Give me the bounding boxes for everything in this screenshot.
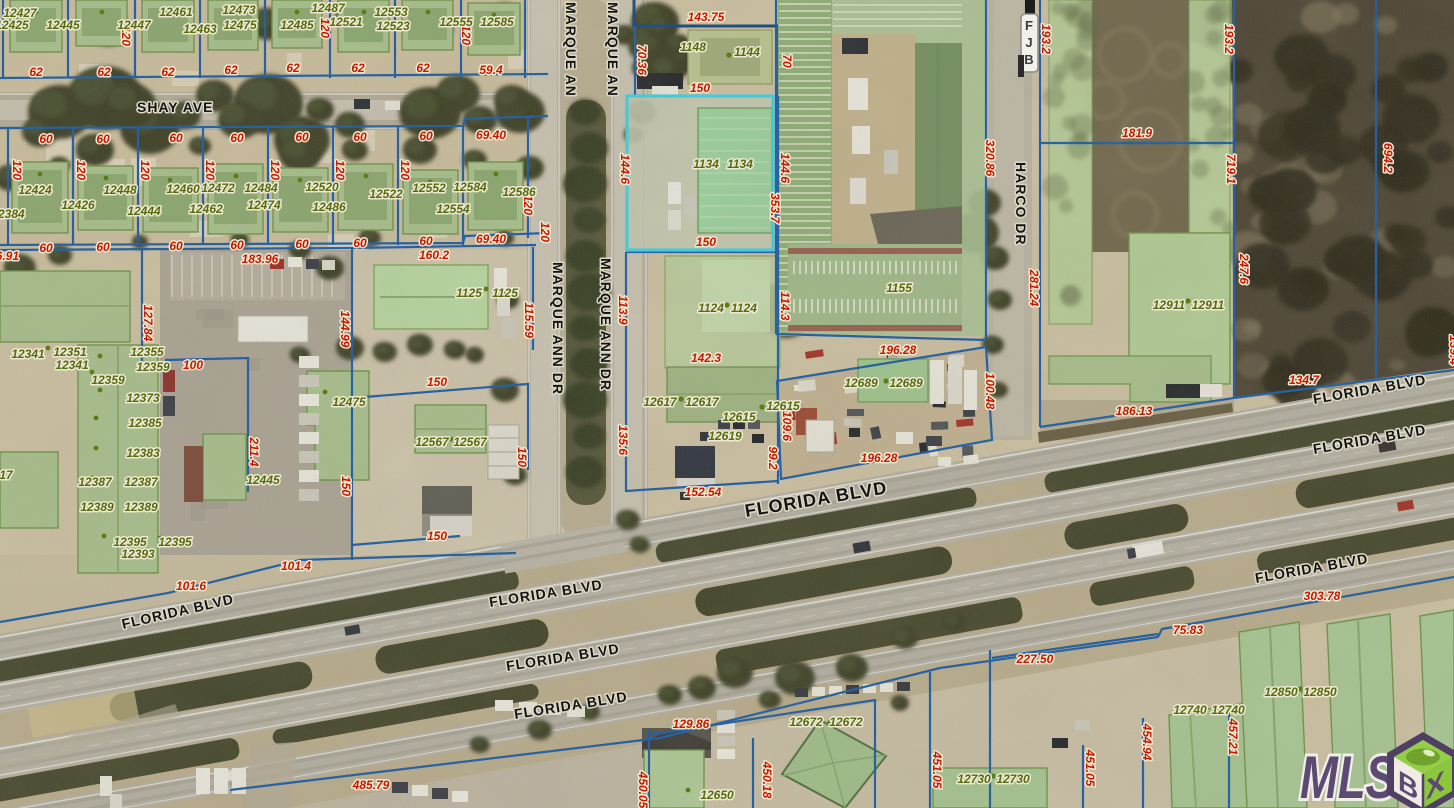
svg-text:12617: 12617	[643, 395, 678, 409]
svg-text:120: 120	[538, 222, 552, 242]
svg-text:60: 60	[96, 240, 110, 254]
svg-text:62: 62	[286, 61, 300, 75]
svg-text:303.78: 303.78	[1304, 589, 1341, 603]
svg-text:12424: 12424	[18, 183, 52, 197]
svg-text:129.86: 129.86	[673, 717, 710, 731]
svg-text:12740: 12740	[1173, 703, 1207, 717]
svg-text:12389: 12389	[124, 500, 158, 514]
svg-text:60: 60	[353, 236, 367, 250]
svg-text:211.4: 211.4	[247, 436, 261, 466]
svg-text:12523: 12523	[376, 19, 410, 33]
svg-text:12475: 12475	[223, 18, 257, 32]
svg-text:1134: 1134	[727, 157, 753, 171]
svg-text:12553: 12553	[374, 5, 408, 19]
svg-text:12359: 12359	[91, 373, 125, 387]
svg-text:60: 60	[39, 132, 53, 146]
svg-text:12552: 12552	[412, 181, 446, 195]
svg-text:60: 60	[230, 238, 244, 252]
svg-text:62: 62	[351, 61, 365, 75]
svg-text:12445: 12445	[246, 473, 280, 487]
svg-text:12387: 12387	[78, 475, 113, 489]
svg-text:12586: 12586	[502, 185, 536, 199]
svg-text:193.2: 193.2	[1039, 24, 1053, 54]
svg-text:150: 150	[427, 375, 447, 389]
svg-text:69.40: 69.40	[476, 232, 506, 246]
svg-text:12383: 12383	[126, 446, 160, 460]
svg-text:12389: 12389	[80, 500, 114, 514]
svg-text:17: 17	[0, 468, 14, 482]
svg-text:109.6: 109.6	[780, 411, 794, 441]
svg-text:MLS: MLS	[1300, 744, 1396, 808]
svg-text:101.6: 101.6	[176, 579, 206, 593]
svg-text:F: F	[1025, 18, 1033, 33]
svg-text:60: 60	[169, 131, 183, 145]
svg-text:60: 60	[169, 239, 183, 253]
svg-text:75.83: 75.83	[1173, 623, 1203, 637]
svg-text:60: 60	[295, 237, 309, 251]
svg-text:12472: 12472	[201, 181, 235, 195]
svg-text:12730: 12730	[957, 772, 991, 786]
svg-text:60: 60	[39, 241, 53, 255]
svg-text:196.28: 196.28	[861, 451, 898, 465]
svg-text:12554: 12554	[436, 202, 470, 216]
svg-text:114.3: 114.3	[778, 291, 792, 320]
svg-text:247.6: 247.6	[1237, 253, 1251, 284]
svg-text:144.99: 144.99	[338, 311, 352, 348]
svg-text:62: 62	[97, 65, 111, 79]
svg-text:12426: 12426	[61, 198, 95, 212]
svg-text:1125: 1125	[456, 286, 482, 300]
svg-text:MARQUE AN: MARQUE AN	[563, 2, 579, 97]
svg-text:120: 120	[74, 160, 88, 180]
svg-text:12615: 12615	[722, 410, 756, 424]
svg-text:152.54: 152.54	[685, 485, 722, 499]
svg-text:144.6: 144.6	[778, 153, 792, 183]
svg-text:134.7: 134.7	[1289, 373, 1320, 387]
svg-text:12385: 12385	[128, 416, 162, 430]
svg-text:12520: 12520	[305, 180, 339, 194]
svg-text:139.4: 139.4	[1447, 335, 1454, 365]
svg-text:12393: 12393	[121, 547, 155, 561]
svg-text:HARCO DR: HARCO DR	[1013, 162, 1029, 245]
svg-text:12384: 12384	[0, 207, 25, 221]
svg-text:99.2: 99.2	[766, 446, 780, 470]
svg-text:12617: 12617	[685, 395, 720, 409]
svg-text:12689: 12689	[889, 376, 923, 390]
svg-text:12425: 12425	[0, 18, 29, 32]
svg-text:1124: 1124	[731, 301, 757, 315]
svg-text:450.18: 450.18	[760, 761, 774, 799]
svg-text:59.4: 59.4	[479, 63, 503, 77]
svg-text:113.9: 113.9	[616, 295, 630, 324]
svg-text:12689: 12689	[844, 376, 878, 390]
svg-text:12584: 12584	[453, 180, 487, 194]
svg-text:12555: 12555	[439, 15, 473, 29]
svg-text:12521: 12521	[329, 15, 363, 29]
svg-text:12462: 12462	[189, 202, 223, 216]
svg-text:12911: 12911	[1153, 298, 1186, 312]
svg-text:160.2: 160.2	[419, 248, 449, 262]
svg-text:127.84: 127.84	[141, 305, 155, 342]
svg-text:60: 60	[419, 129, 433, 143]
svg-text:100.48: 100.48	[983, 373, 997, 410]
svg-text:12475: 12475	[332, 395, 366, 409]
svg-text:70: 70	[780, 54, 794, 68]
svg-text:100: 100	[183, 358, 203, 372]
svg-text:1134: 1134	[693, 157, 719, 171]
svg-text:12484: 12484	[244, 181, 278, 195]
svg-text:62: 62	[224, 63, 238, 77]
svg-text:12359: 12359	[136, 360, 170, 374]
svg-text:12650: 12650	[700, 788, 734, 802]
svg-text:12485: 12485	[280, 18, 314, 32]
svg-text:454.94: 454.94	[1140, 723, 1154, 761]
svg-text:144.6: 144.6	[618, 154, 632, 184]
svg-text:12730: 12730	[996, 772, 1030, 786]
svg-text:193.2: 193.2	[1222, 24, 1236, 54]
svg-text:115.59: 115.59	[522, 302, 536, 338]
svg-text:70.36: 70.36	[635, 45, 649, 75]
svg-text:1144: 1144	[734, 45, 760, 59]
svg-text:281.24: 281.24	[1027, 269, 1041, 307]
svg-text:1125: 1125	[492, 286, 518, 300]
svg-text:320.86: 320.86	[983, 140, 997, 177]
svg-text:12615: 12615	[766, 399, 800, 413]
svg-text:12672: 12672	[829, 715, 863, 729]
svg-text:12486: 12486	[312, 200, 346, 214]
svg-text:12585: 12585	[480, 15, 514, 29]
svg-text:12387: 12387	[124, 475, 159, 489]
svg-text:MARQUE ANN DR: MARQUE ANN DR	[598, 258, 614, 391]
svg-text:MARQUE ANN DR: MARQUE ANN DR	[550, 262, 566, 395]
svg-text:62: 62	[29, 65, 43, 79]
svg-text:719.1: 719.1	[1224, 154, 1238, 184]
svg-text:227.50: 227.50	[1016, 652, 1054, 666]
svg-text:181.9: 181.9	[1122, 126, 1152, 140]
svg-text:69.40: 69.40	[476, 128, 506, 142]
svg-text:150: 150	[690, 81, 710, 95]
svg-text:J: J	[1025, 35, 1032, 50]
svg-text:150: 150	[339, 476, 353, 496]
svg-text:62: 62	[416, 61, 430, 75]
svg-text:196.28: 196.28	[880, 343, 917, 357]
svg-text:12395: 12395	[158, 535, 192, 549]
svg-text:12911: 12911	[1192, 298, 1225, 312]
svg-text:457.21: 457.21	[1226, 718, 1240, 756]
svg-text:120: 120	[138, 160, 152, 180]
svg-text:12461: 12461	[159, 5, 193, 19]
svg-text:12672: 12672	[789, 715, 823, 729]
svg-text:451.05: 451.05	[1083, 749, 1097, 787]
svg-text:1148: 1148	[680, 40, 706, 54]
svg-text:60: 60	[419, 234, 433, 248]
svg-text:12460: 12460	[166, 182, 200, 196]
svg-text:135.6: 135.6	[616, 425, 630, 455]
svg-text:150: 150	[515, 447, 529, 467]
svg-text:120: 120	[10, 160, 24, 180]
svg-text:12445: 12445	[46, 18, 80, 32]
svg-text:120: 120	[268, 160, 282, 180]
svg-text:485.79: 485.79	[352, 778, 390, 792]
svg-text:60: 60	[353, 130, 367, 144]
svg-text:451.05: 451.05	[930, 751, 944, 789]
svg-text:183.96: 183.96	[242, 252, 279, 266]
svg-text:353.7: 353.7	[768, 193, 782, 224]
svg-text:36.91: 36.91	[0, 249, 19, 263]
svg-text:12567: 12567	[453, 435, 488, 449]
svg-text:SHAY AVE: SHAY AVE	[137, 99, 213, 115]
svg-text:60: 60	[295, 130, 309, 144]
svg-text:12355: 12355	[130, 345, 164, 359]
svg-text:12341: 12341	[11, 347, 45, 361]
svg-text:150: 150	[696, 235, 716, 249]
svg-text:12619: 12619	[708, 429, 742, 443]
svg-text:12447: 12447	[117, 18, 152, 32]
svg-text:694.2: 694.2	[1381, 143, 1395, 173]
svg-text:1155: 1155	[886, 281, 912, 295]
svg-text:12373: 12373	[126, 391, 160, 405]
svg-text:120: 120	[203, 160, 217, 180]
svg-text:150: 150	[427, 529, 447, 543]
svg-text:120: 120	[398, 160, 412, 180]
svg-text:142.3: 142.3	[691, 351, 721, 365]
svg-text:12351: 12351	[53, 345, 87, 359]
svg-text:12567: 12567	[415, 435, 450, 449]
svg-text:MARQUE AN: MARQUE AN	[605, 2, 621, 97]
svg-text:120: 120	[333, 160, 347, 180]
svg-text:12444: 12444	[127, 204, 161, 218]
svg-text:12522: 12522	[369, 187, 403, 201]
svg-text:12341: 12341	[55, 358, 89, 372]
svg-text:12448: 12448	[103, 183, 137, 197]
svg-text:12850: 12850	[1264, 685, 1298, 699]
svg-text:1124: 1124	[698, 301, 724, 315]
svg-text:12850: 12850	[1303, 685, 1337, 699]
svg-text:60: 60	[96, 132, 110, 146]
svg-text:B: B	[1024, 52, 1033, 67]
svg-text:186.13: 186.13	[1116, 404, 1153, 418]
svg-text:12463: 12463	[183, 22, 217, 36]
svg-text:101.4: 101.4	[281, 559, 311, 573]
svg-text:12740: 12740	[1211, 703, 1245, 717]
svg-text:450.05: 450.05	[636, 771, 650, 808]
svg-text:12473: 12473	[222, 3, 256, 17]
svg-text:143.75: 143.75	[688, 10, 725, 24]
svg-text:12474: 12474	[247, 198, 281, 212]
svg-text:60: 60	[230, 131, 244, 145]
svg-text:62: 62	[161, 65, 175, 79]
svg-text:12487: 12487	[311, 1, 346, 15]
